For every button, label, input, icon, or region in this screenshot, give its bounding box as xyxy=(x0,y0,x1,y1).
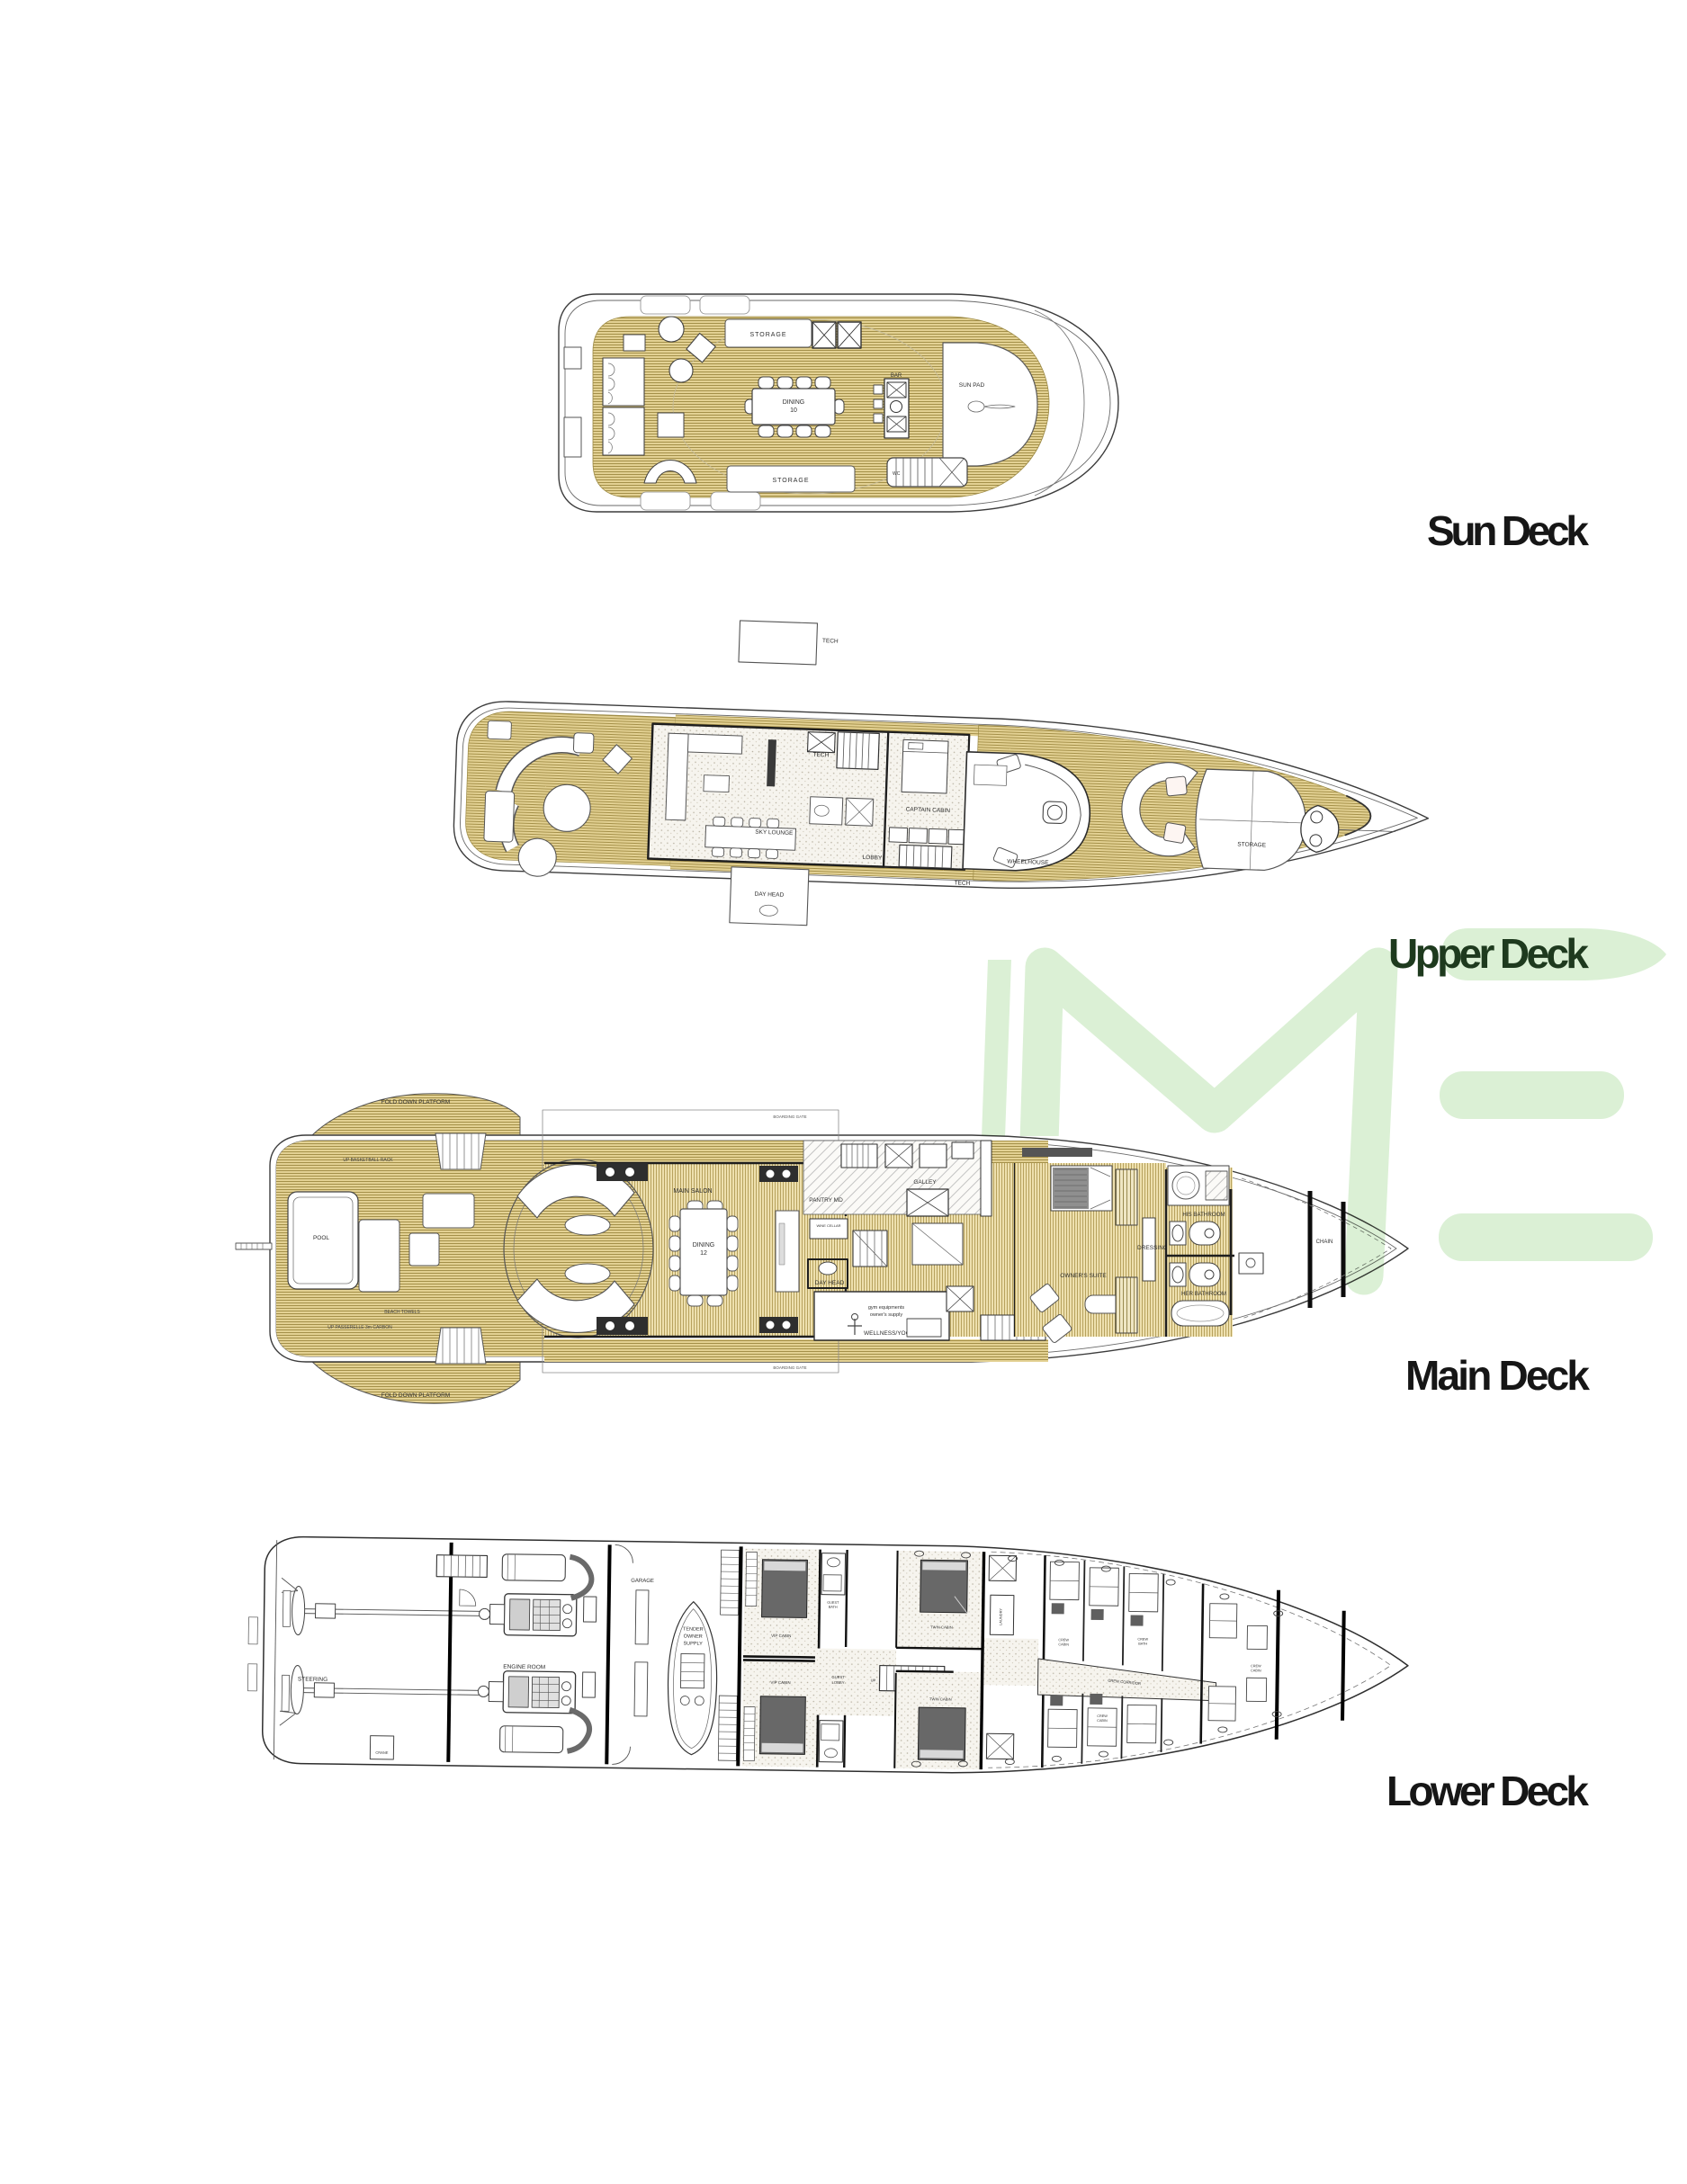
svg-text:10: 10 xyxy=(790,407,797,414)
svg-text:VIP CABIN: VIP CABIN xyxy=(770,1680,790,1685)
svg-text:GUEST: GUEST xyxy=(831,1675,845,1679)
svg-text:STEERING: STEERING xyxy=(298,1677,328,1683)
svg-text:TWIN CABIN: TWIN CABIN xyxy=(930,1625,953,1629)
svg-text:LOBBY: LOBBY xyxy=(832,1680,845,1685)
svg-text:Upper Deck: Upper Deck xyxy=(1388,930,1589,977)
svg-text:CREW: CREW xyxy=(1137,1638,1148,1642)
svg-text:TECH: TECH xyxy=(812,752,829,759)
svg-text:UP PASSERELLE 3m CARBON: UP PASSERELLE 3m CARBON xyxy=(328,1325,392,1330)
svg-text:HIS BATHROOM: HIS BATHROOM xyxy=(1182,1212,1225,1218)
svg-text:STORAGE: STORAGE xyxy=(1237,841,1267,848)
svg-text:STORAGE: STORAGE xyxy=(749,332,786,338)
svg-text:TECH: TECH xyxy=(822,638,839,645)
svg-text:Lower Deck: Lower Deck xyxy=(1386,1768,1589,1814)
svg-text:DAY HEAD: DAY HEAD xyxy=(754,891,784,899)
svg-text:SKY LOUNGE: SKY LOUNGE xyxy=(755,829,794,837)
svg-text:ENGINE ROOM: ENGINE ROOM xyxy=(503,1664,545,1671)
svg-text:TWIN CABIN: TWIN CABIN xyxy=(929,1696,952,1701)
svg-text:DINING: DINING xyxy=(693,1242,715,1249)
svg-text:DINING: DINING xyxy=(783,399,805,406)
svg-text:LAUNDRY: LAUNDRY xyxy=(998,1608,1002,1625)
svg-text:BAR: BAR xyxy=(891,373,902,379)
svg-text:BATH: BATH xyxy=(829,1606,838,1609)
svg-text:STORAGE: STORAGE xyxy=(772,478,809,484)
svg-text:SUN PAD: SUN PAD xyxy=(959,382,985,389)
svg-text:Sun Deck: Sun Deck xyxy=(1427,507,1589,554)
svg-text:OWNER: OWNER xyxy=(684,1634,703,1640)
svg-text:CABIN: CABIN xyxy=(1058,1642,1069,1646)
svg-text:12: 12 xyxy=(700,1250,707,1257)
svg-text:POOL: POOL xyxy=(313,1235,329,1241)
svg-text:BEACH TOWELS: BEACH TOWELS xyxy=(384,1310,420,1315)
svg-text:gym equipments: gym equipments xyxy=(868,1305,905,1311)
svg-text:UP BASKETBALL RACK: UP BASKETBALL RACK xyxy=(343,1158,393,1163)
svg-text:owner's supply: owner's supply xyxy=(870,1312,902,1318)
svg-text:GALLEY: GALLEY xyxy=(913,1179,937,1186)
svg-text:BOARDING GATE: BOARDING GATE xyxy=(773,1114,806,1119)
svg-text:CREW: CREW xyxy=(1251,1664,1261,1668)
svg-text:HER BATHROOM: HER BATHROOM xyxy=(1181,1291,1226,1297)
svg-text:CREW: CREW xyxy=(1097,1714,1108,1718)
svg-text:Main Deck: Main Deck xyxy=(1405,1352,1590,1399)
svg-text:VIP CABIN: VIP CABIN xyxy=(771,1634,791,1638)
svg-text:BATH: BATH xyxy=(1138,1642,1147,1646)
svg-text:CABIN: CABIN xyxy=(1097,1719,1108,1723)
svg-text:OWNER'S SUITE: OWNER'S SUITE xyxy=(1060,1273,1107,1279)
svg-text:CABIN: CABIN xyxy=(1251,1669,1261,1672)
svg-text:FOLD DOWN PLATFORM: FOLD DOWN PLATFORM xyxy=(381,1392,450,1399)
svg-text:UP: UP xyxy=(871,1678,876,1682)
svg-text:SUPPLY: SUPPLY xyxy=(683,1642,703,1647)
svg-text:LOBBY: LOBBY xyxy=(862,855,883,862)
svg-text:GARAGE: GARAGE xyxy=(631,1579,654,1584)
svg-text:TENDER: TENDER xyxy=(683,1627,704,1633)
svg-text:BOARDING GATE: BOARDING GATE xyxy=(773,1365,806,1370)
svg-text:CREW: CREW xyxy=(1058,1638,1069,1642)
svg-text:MAIN SALON: MAIN SALON xyxy=(673,1188,712,1195)
svg-text:GUEST: GUEST xyxy=(827,1601,839,1605)
svg-text:FOLD DOWN PLATFORM: FOLD DOWN PLATFORM xyxy=(381,1099,450,1105)
svg-text:CRANE: CRANE xyxy=(375,1750,388,1755)
svg-text:WC: WC xyxy=(893,471,901,477)
svg-text:DRESSING: DRESSING xyxy=(1137,1245,1168,1251)
svg-text:CHAIN: CHAIN xyxy=(1316,1240,1333,1245)
svg-text:WINE CELLAR: WINE CELLAR xyxy=(816,1223,840,1228)
svg-text:DAY HEAD: DAY HEAD xyxy=(815,1280,845,1286)
svg-text:PANTRY MD: PANTRY MD xyxy=(809,1197,843,1204)
svg-text:TECH: TECH xyxy=(955,880,971,887)
